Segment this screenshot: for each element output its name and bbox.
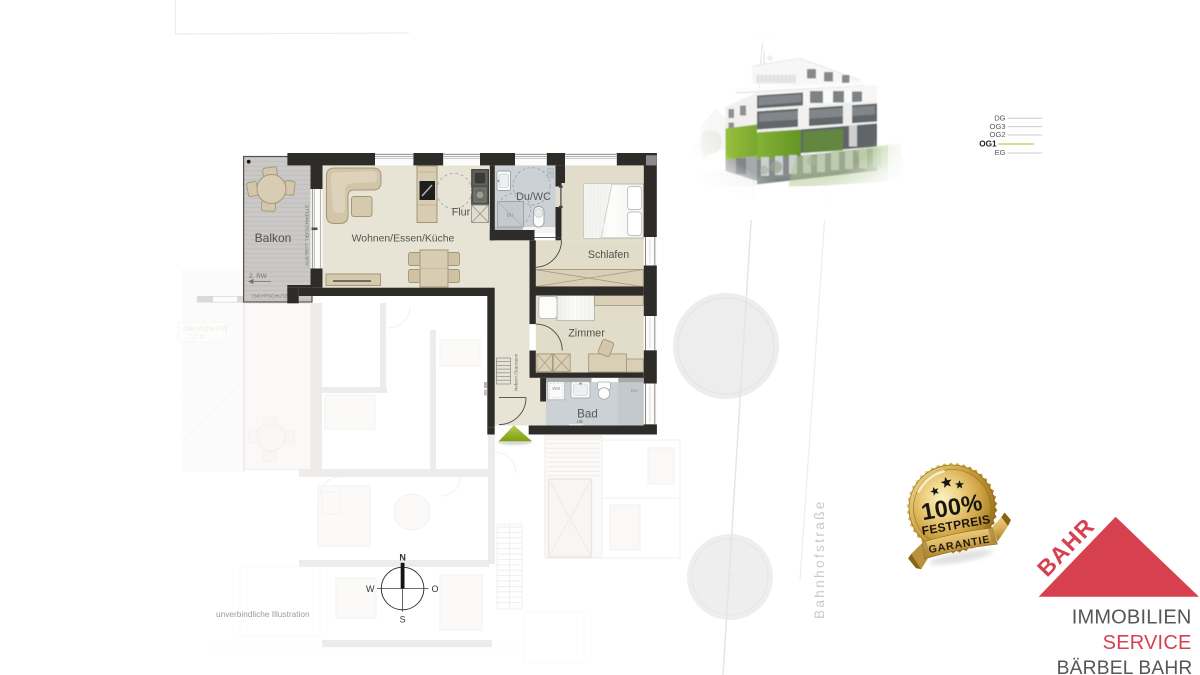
svg-text:Zimmer: Zimmer	[568, 328, 605, 340]
svg-text:IMMOBILIEN: IMMOBILIEN	[1072, 607, 1192, 629]
svg-text:Bad: Bad	[577, 408, 598, 421]
svg-text:Du/WC: Du/WC	[516, 191, 551, 203]
svg-text:Flur: Flur	[452, 207, 471, 219]
svg-text:unverbindliche Illustration: unverbindliche Illustration	[216, 609, 310, 619]
svg-text:BÄRBEL BAHR: BÄRBEL BAHR	[1057, 658, 1193, 675]
svg-text:10 m: 10 m	[190, 334, 206, 341]
svg-text:DU: DU	[507, 213, 514, 219]
svg-text:AUSTRITT TIEFSCHWELLE: AUSTRITT TIEFSCHWELLE	[305, 205, 311, 266]
svg-text:Bahnhofstraße: Bahnhofstraße	[812, 499, 827, 619]
svg-text:WM: WM	[552, 386, 560, 391]
svg-text:Wohnen/Essen/Küche: Wohnen/Essen/Küche	[352, 234, 455, 245]
svg-text:2. RW: 2. RW	[249, 273, 268, 280]
svg-text:N: N	[399, 553, 406, 563]
svg-text:SERVICE: SERVICE	[1103, 632, 1192, 654]
svg-text:öffentliche FW: öffentliche FW	[183, 326, 228, 333]
svg-text:OG2: OG2	[990, 130, 1006, 139]
svg-text:Nebenr./Stauraum: Nebenr./Stauraum	[514, 354, 519, 391]
svg-text:Balkon: Balkon	[255, 231, 292, 245]
svg-text:OG1: OG1	[979, 139, 997, 148]
svg-text:DU: DU	[631, 388, 638, 393]
svg-text:W: W	[366, 584, 375, 594]
svg-text:EG: EG	[995, 148, 1006, 157]
svg-text:Schlafen: Schlafen	[588, 249, 629, 261]
svg-text:S: S	[400, 615, 406, 625]
svg-text:O: O	[432, 584, 439, 594]
svg-text:(SICHTSCHUTZ): (SICHTSCHUTZ)	[252, 294, 289, 300]
